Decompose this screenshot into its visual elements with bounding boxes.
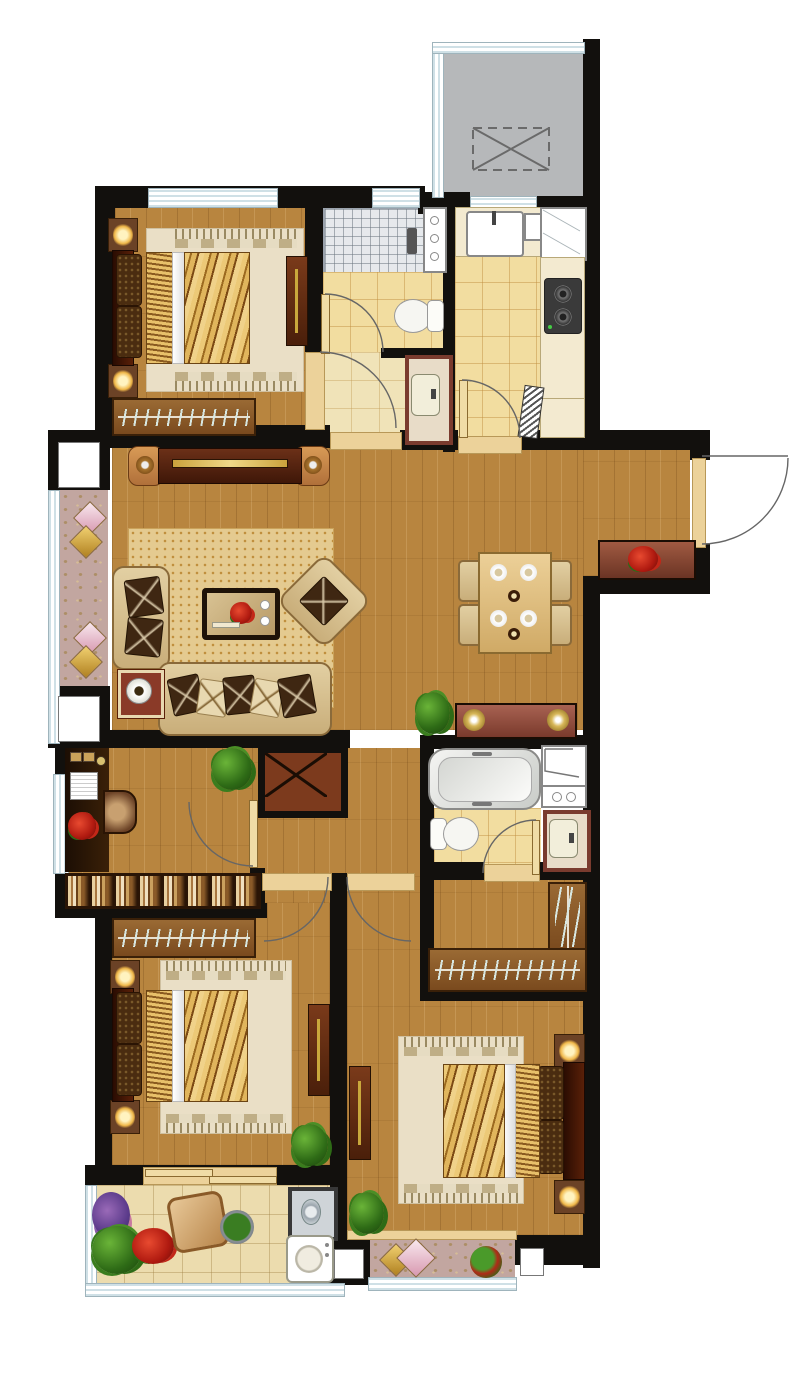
- bed-blanket: [184, 252, 250, 364]
- place-setting: [490, 610, 507, 627]
- potted-plant: [212, 748, 252, 790]
- place-setting: [520, 610, 537, 627]
- rug-fringe: [175, 381, 297, 391]
- duct-shaft: [258, 746, 348, 818]
- picture-frame: [83, 752, 95, 762]
- desk-chair: [103, 790, 137, 834]
- sink-basin: [295, 1245, 323, 1273]
- bathtub: [428, 748, 541, 810]
- column-pier: [58, 442, 100, 488]
- table-lamp: [463, 709, 485, 731]
- lamp-side-table: [118, 670, 164, 718]
- washer: [288, 1187, 338, 1241]
- teacup: [260, 600, 270, 610]
- bed-headboard: [563, 1062, 585, 1180]
- wall: [583, 39, 600, 196]
- handle: [317, 1019, 320, 1081]
- closet-wardrobe-vertical: [548, 882, 587, 952]
- faucet: [325, 1243, 329, 1247]
- bed-blanket-trim: [514, 1064, 540, 1178]
- throw-pillow: [277, 673, 317, 718]
- knob: [566, 792, 576, 802]
- seat-cushion: [124, 576, 165, 619]
- rug-band: [404, 1047, 518, 1056]
- wall: [420, 862, 484, 880]
- cooktop: [544, 278, 582, 334]
- lamp-glow: [559, 1039, 579, 1063]
- speaker: [304, 456, 322, 474]
- window: [148, 188, 278, 208]
- desk-flowers: [68, 812, 96, 840]
- service-balcony-floor: [442, 52, 585, 198]
- bathroom-north-door-leaf: [321, 294, 330, 354]
- bathroom-sink: [411, 374, 440, 416]
- floor-plan: [0, 0, 800, 1382]
- faucet: [325, 1253, 329, 1257]
- dresser: [286, 256, 308, 346]
- potted-plant: [350, 1192, 384, 1234]
- bed-blanket: [184, 990, 248, 1102]
- tub-handle: [472, 802, 492, 806]
- pillow: [116, 254, 142, 306]
- nightstand: [108, 218, 138, 252]
- serving-bowl: [508, 590, 520, 602]
- table-lamp: [547, 709, 569, 731]
- bathroom-sink: [549, 819, 578, 858]
- kitchen-door-leaf: [459, 380, 468, 438]
- pillow: [116, 1044, 142, 1096]
- pillow: [538, 1066, 564, 1120]
- balcony-glazing: [432, 42, 585, 54]
- wardrobe-hangers: [120, 929, 249, 947]
- bed-blanket: [443, 1064, 505, 1178]
- knob: [430, 252, 439, 261]
- burner: [554, 308, 572, 326]
- toilet-bowl: [443, 817, 479, 851]
- handle: [295, 269, 298, 333]
- column-pier: [58, 696, 100, 742]
- tv-console: [128, 446, 330, 484]
- table-plate: [126, 678, 152, 704]
- knob: [552, 792, 562, 802]
- laundry-sink: [286, 1235, 334, 1283]
- pillow: [116, 992, 142, 1044]
- shaft-x-mark: [265, 753, 327, 797]
- place-setting: [490, 564, 507, 581]
- rug-fringe: [166, 1123, 286, 1133]
- pillow: [538, 1120, 564, 1174]
- wall: [330, 893, 347, 1185]
- faucet: [569, 833, 574, 843]
- rug-band: [175, 239, 297, 248]
- bookshelf: [65, 873, 261, 909]
- tv-screen: [172, 459, 288, 468]
- nightstand: [108, 364, 138, 398]
- balcony-glazing: [85, 1283, 345, 1297]
- wardrobe-hangers: [555, 887, 580, 948]
- red-flowers: [132, 1228, 174, 1264]
- seat-cushion: [299, 576, 350, 627]
- rug-band: [404, 1184, 518, 1193]
- indicator-light: [548, 325, 552, 329]
- bathroom-cabinet: [541, 745, 587, 787]
- lamp-glow: [559, 1185, 579, 1209]
- lamp-glow: [113, 223, 133, 247]
- sideboard: [455, 703, 577, 739]
- bedroom-se-door-opening: [347, 873, 415, 891]
- potted-plant: [292, 1124, 328, 1166]
- three-seat-sofa: [158, 662, 332, 736]
- sliding-door-panel: [209, 1176, 277, 1184]
- wardrobe-hangers: [120, 409, 249, 426]
- rug-fringe: [175, 229, 297, 239]
- wall: [690, 430, 710, 460]
- teacup: [260, 616, 270, 626]
- rug-band: [166, 1114, 286, 1123]
- cabinet-door-mark: [543, 747, 581, 781]
- table-flowers: [230, 602, 252, 624]
- bedroom-sw-door-opening: [262, 873, 332, 891]
- vestibule-floor: [323, 352, 405, 438]
- tray: [212, 622, 240, 628]
- place-setting: [520, 564, 537, 581]
- tub-handle: [472, 752, 492, 756]
- entry-flowers: [628, 546, 658, 572]
- rug-fringe: [404, 1193, 518, 1203]
- bedroom-north-door-opening: [305, 352, 325, 430]
- pillow: [116, 306, 142, 358]
- picture-frame: [70, 752, 82, 762]
- kitchen-sink: [466, 211, 524, 257]
- rug-band: [166, 971, 286, 980]
- knob: [430, 234, 439, 243]
- loveseat: [112, 566, 170, 670]
- potted-plant: [416, 692, 450, 734]
- window: [372, 188, 420, 208]
- wall: [330, 873, 347, 895]
- knob: [430, 216, 439, 225]
- balcony-glazing: [368, 1277, 517, 1291]
- bathroom-south-door-leaf: [532, 820, 540, 875]
- bed-blanket-trim: [146, 252, 174, 364]
- wall: [85, 1165, 97, 1187]
- entry-door-opening: [692, 458, 706, 548]
- wardrobe: [112, 398, 256, 436]
- tub-inner: [438, 757, 532, 802]
- entry-door-arc: [702, 458, 788, 544]
- tv-board: [308, 1004, 330, 1096]
- dining-table: [478, 552, 552, 654]
- washer-drum: [301, 1199, 321, 1225]
- bed-blanket-trim: [146, 990, 174, 1102]
- round-planter: [220, 1210, 254, 1244]
- vestibule-opening: [330, 432, 402, 450]
- study-door-leaf: [249, 800, 258, 868]
- column-pier: [520, 1248, 544, 1276]
- toilet-tank: [427, 300, 444, 332]
- coffee-table: [202, 588, 280, 640]
- rug-fringe: [404, 1037, 518, 1047]
- speaker: [136, 456, 154, 474]
- shower-fixture: [407, 228, 417, 254]
- nightstand: [554, 1180, 585, 1214]
- faucet: [492, 211, 496, 225]
- tv-board: [349, 1066, 371, 1160]
- seat-cushion: [124, 616, 164, 658]
- nightstand: [110, 1100, 140, 1134]
- lamp-glow: [115, 1105, 135, 1129]
- faucet: [431, 389, 436, 399]
- rug-band: [175, 372, 297, 381]
- serving-bowl: [508, 628, 520, 640]
- wardrobe-hangers: [436, 960, 579, 980]
- column-pier: [334, 1249, 364, 1279]
- rug-fringe: [166, 961, 286, 971]
- balcony-glazing: [432, 42, 444, 198]
- burner: [554, 285, 572, 303]
- kitchen-door-opening: [458, 436, 522, 454]
- sliding-door-panel: [145, 1169, 213, 1177]
- fridge: [540, 207, 587, 261]
- washer-box: [541, 785, 587, 808]
- round-planter: [470, 1246, 502, 1278]
- desk-clock: [96, 756, 106, 766]
- lamp-glow: [113, 369, 133, 393]
- lamp-glow: [115, 965, 135, 989]
- tall-cabinet: [423, 207, 447, 273]
- wardrobe: [112, 918, 256, 958]
- open-book: [70, 772, 98, 800]
- kitchen-corner-counter: [540, 398, 585, 438]
- closet-wardrobe-horizontal: [428, 948, 587, 992]
- handle: [358, 1081, 361, 1145]
